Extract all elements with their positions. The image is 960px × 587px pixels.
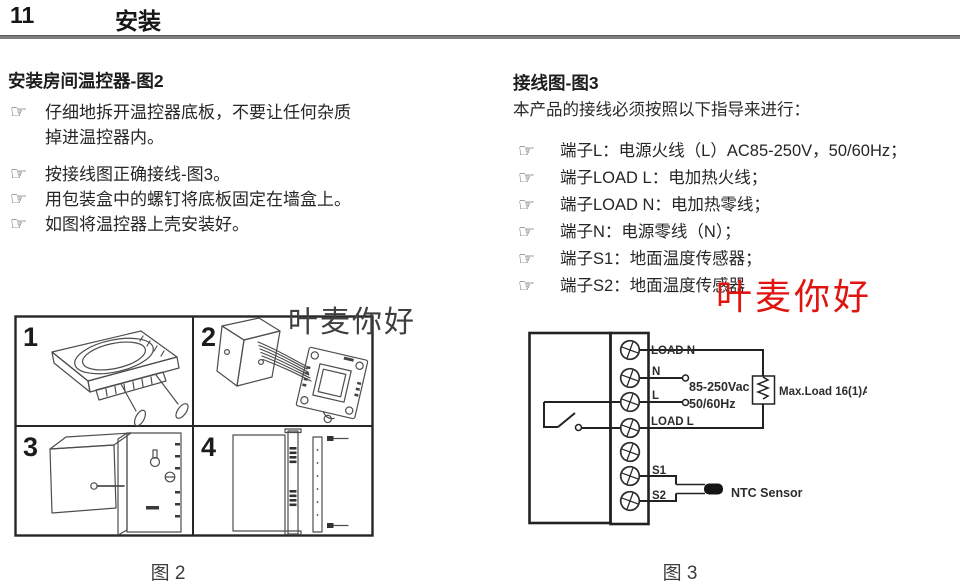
panel-3-mounting-drawing (50, 433, 181, 535)
list-item: ☞ 端子LOAD N：电加热零线； (518, 192, 958, 219)
ntc-sensor-label: NTC Sensor (731, 486, 803, 500)
pointing-hand-icon: ☞ (518, 273, 560, 300)
diagram-labels: LOAD N N L LOAD L S1 S2 85-250Vac 50/60H… (651, 345, 867, 502)
panel-number-3: 3 (23, 432, 38, 462)
terminal-text: 端子LOAD L：电加热火线； (560, 165, 767, 192)
terminal-label-load-l: LOAD L (651, 416, 694, 428)
panel-number-1: 1 (23, 322, 38, 352)
watermark-red: 叶麦你好 (716, 268, 872, 320)
step-text: 用包装盒中的螺钉将底板固定在墙盒上。 (45, 187, 363, 212)
wiring-intro: 本产品的接线必须按照以下指导来进行： (513, 96, 810, 120)
list-item: ☞ 端子N：电源零线（N）； (518, 219, 958, 246)
install-steps-list: ☞ 仔细地拆开温控器底板，不要让任何杂质掉进温控器内。 ☞ 按接线图正确接线-图… (10, 100, 410, 237)
voltage-label: 85-250Vac (689, 380, 750, 394)
step-text: 仔细地拆开温控器底板，不要让任何杂质掉进温控器内。 (45, 100, 363, 150)
list-item: ☞ 端子L：电源火线（L）AC85-250V，50/60Hz； (518, 138, 958, 165)
pointing-hand-icon: ☞ (10, 187, 45, 212)
panel-4-sideview-drawing (233, 429, 348, 535)
pointing-hand-icon: ☞ (10, 212, 45, 237)
pointing-hand-icon: ☞ (518, 165, 560, 192)
list-item: ☞ 如图将温控器上壳安装好。 (10, 212, 410, 237)
pointing-hand-icon: ☞ (518, 138, 560, 165)
pointing-hand-icon: ☞ (10, 100, 45, 125)
pointing-hand-icon: ☞ (518, 219, 560, 246)
terminal-label-n: N (652, 366, 660, 378)
pointing-hand-icon: ☞ (10, 162, 45, 187)
step-text: 如图将温控器上壳安装好。 (45, 212, 363, 237)
figure-2-caption: 图 2 (128, 558, 208, 585)
list-item: ☞ 按接线图正确接线-图3。 (10, 162, 410, 187)
header-divider (0, 35, 960, 39)
step-text: 按接线图正确接线-图3。 (45, 162, 363, 187)
section-title: 安装 (115, 2, 161, 36)
watermark-black: 叶麦你好 (288, 297, 416, 341)
figure-3-caption: 图 3 (640, 558, 720, 585)
terminal-text: 端子LOAD N：电加热零线； (560, 192, 770, 219)
panel-number-2: 2 (201, 322, 216, 352)
list-item: ☞ 端子LOAD L：电加热火线； (518, 165, 958, 192)
figure-2-installation-diagram: 1 2 3 4 (14, 314, 375, 538)
terminal-label-s1: S1 (652, 465, 667, 477)
terminal-screws (618, 338, 642, 513)
panel-number-4: 4 (201, 432, 216, 462)
pointing-hand-icon: ☞ (518, 246, 560, 273)
ntc-sensor-probe (704, 484, 723, 495)
max-load-label: Max.Load 16(1)A (779, 386, 867, 398)
pointing-hand-icon: ☞ (518, 192, 560, 219)
section-number: 11 (10, 2, 34, 29)
manual-page: 11 安装 安装房间温控器-图2 ☞ 仔细地拆开温控器底板，不要让任何杂质掉进温… (0, 0, 960, 587)
list-item: ☞ 仔细地拆开温控器底板，不要让任何杂质掉进温控器内。 (10, 100, 410, 150)
left-heading: 安装房间温控器-图2 (8, 68, 164, 93)
terminal-label-load-n: LOAD N (651, 345, 695, 357)
terminal-label-s2: S2 (652, 490, 666, 502)
terminal-label-l: L (652, 390, 659, 402)
panel-1-thermostat-drawing (52, 331, 190, 427)
frequency-label: 50/60Hz (689, 397, 736, 411)
terminal-text: 端子L：电源火线（L）AC85-250V，50/60Hz； (560, 138, 907, 165)
right-heading: 接线图-图3 (513, 70, 599, 95)
terminal-text: 端子N：电源零线（N）； (560, 219, 741, 246)
figure-3-wiring-diagram: LOAD N N L LOAD L S1 S2 85-250Vac 50/60H… (522, 326, 867, 528)
list-item: ☞ 用包装盒中的螺钉将底板固定在墙盒上。 (10, 187, 410, 212)
